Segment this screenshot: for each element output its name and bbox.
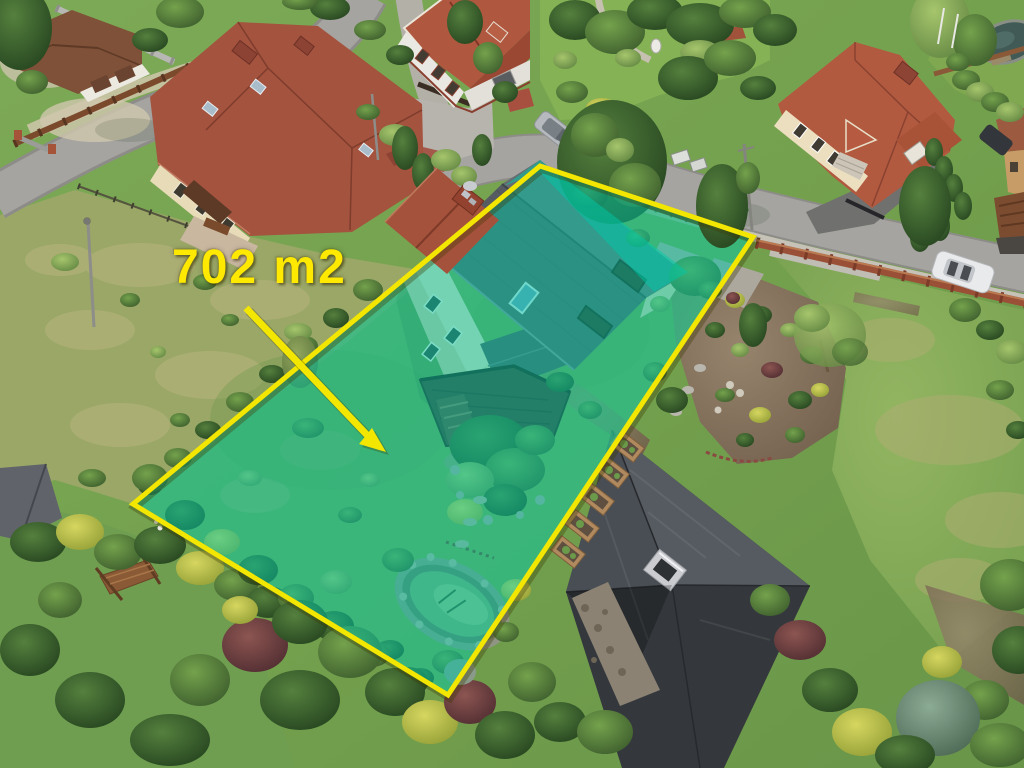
street-conifer (899, 166, 951, 246)
area-label: 702 m2 (172, 240, 347, 295)
satellite-dish (463, 181, 477, 191)
aerial-photo: 702 m2 (0, 0, 1024, 768)
aerial-photo-canvas (0, 0, 1024, 768)
garden-statue (651, 39, 661, 53)
